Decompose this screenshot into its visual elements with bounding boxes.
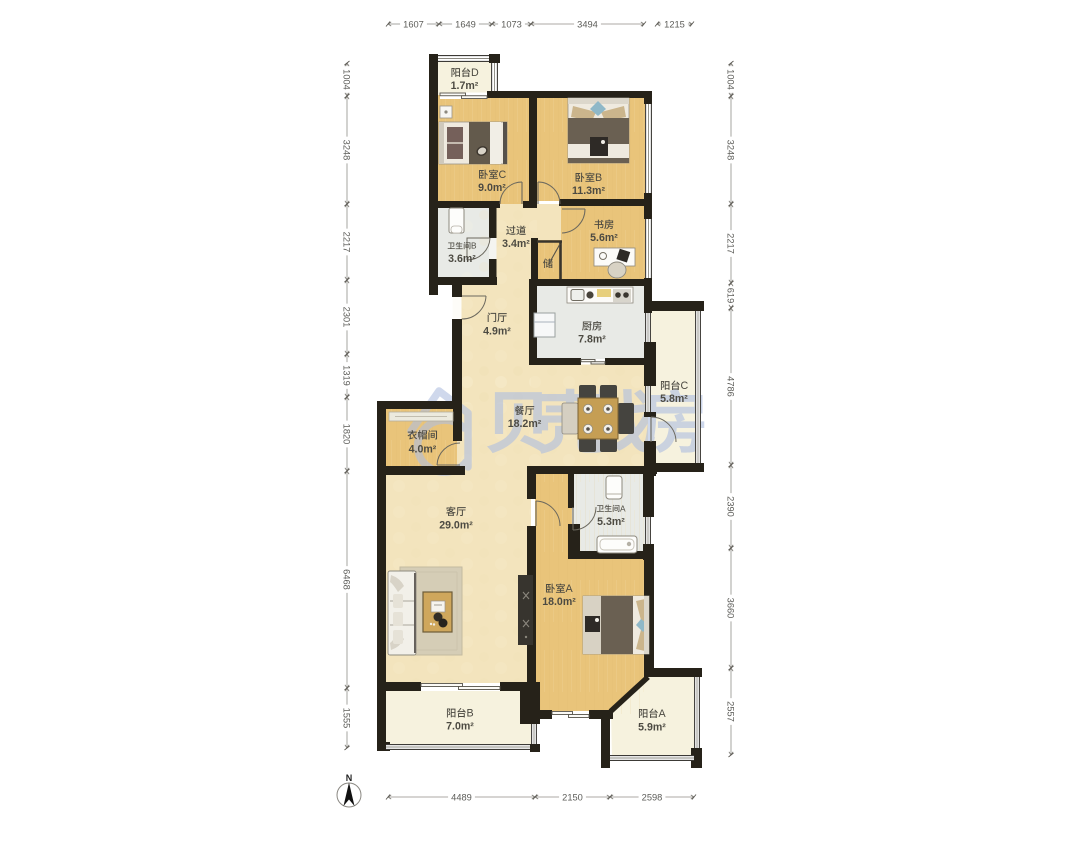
svg-text:1649: 1649: [455, 19, 476, 29]
svg-text:A: A: [659, 708, 667, 720]
svg-text:B: B: [595, 172, 602, 184]
svg-text:2217: 2217: [342, 232, 352, 253]
svg-text:3248: 3248: [726, 140, 736, 161]
svg-text:C: C: [499, 169, 507, 181]
svg-text:A: A: [620, 503, 626, 513]
svg-text:5.6m²: 5.6m²: [590, 232, 618, 244]
svg-text:A: A: [566, 583, 574, 595]
svg-text:D: D: [471, 67, 479, 79]
svg-text:5.8m²: 5.8m²: [660, 393, 688, 405]
svg-text:29.0m²: 29.0m²: [439, 519, 473, 531]
svg-text:1820: 1820: [342, 424, 352, 445]
svg-text:3.6m²: 3.6m²: [448, 253, 476, 265]
svg-text:3494: 3494: [577, 19, 598, 29]
svg-text:1215: 1215: [664, 19, 685, 29]
svg-text:7.0m²: 7.0m²: [446, 720, 474, 732]
svg-text:5.9m²: 5.9m²: [638, 721, 666, 733]
svg-text:2217: 2217: [726, 233, 736, 254]
svg-text:11.3m²: 11.3m²: [572, 185, 605, 197]
svg-text:B: B: [471, 241, 477, 251]
svg-text:18.0m²: 18.0m²: [542, 596, 576, 608]
svg-text:3.4m²: 3.4m²: [502, 238, 530, 250]
svg-text:N: N: [346, 773, 353, 783]
svg-text:2390: 2390: [726, 496, 736, 517]
svg-text:1073: 1073: [501, 19, 522, 29]
svg-text:7.8m²: 7.8m²: [578, 333, 606, 345]
svg-text:4.9m²: 4.9m²: [483, 325, 511, 337]
svg-text:3660: 3660: [726, 598, 736, 619]
svg-text:C: C: [681, 380, 689, 392]
svg-text:2598: 2598: [642, 792, 663, 802]
svg-text:1555: 1555: [342, 708, 352, 729]
svg-text:18.2m²: 18.2m²: [508, 418, 542, 430]
svg-text:9.0m²: 9.0m²: [478, 182, 506, 194]
svg-text:4786: 4786: [726, 376, 736, 397]
svg-text:1.7m²: 1.7m²: [451, 80, 479, 92]
svg-text:1004: 1004: [342, 69, 352, 90]
svg-text:B: B: [467, 708, 474, 720]
svg-text:2557: 2557: [726, 701, 736, 722]
svg-text:1319: 1319: [342, 365, 352, 386]
svg-text:619: 619: [726, 288, 736, 304]
svg-text:4489: 4489: [451, 792, 472, 802]
svg-text:2301: 2301: [342, 307, 352, 328]
svg-text:6468: 6468: [342, 569, 352, 590]
svg-text:4.0m²: 4.0m²: [409, 443, 437, 455]
svg-text:2150: 2150: [562, 792, 583, 802]
svg-text:5.3m²: 5.3m²: [597, 516, 625, 528]
svg-text:1004: 1004: [726, 69, 736, 90]
svg-text:1607: 1607: [403, 19, 424, 29]
svg-text:3248: 3248: [342, 140, 352, 161]
